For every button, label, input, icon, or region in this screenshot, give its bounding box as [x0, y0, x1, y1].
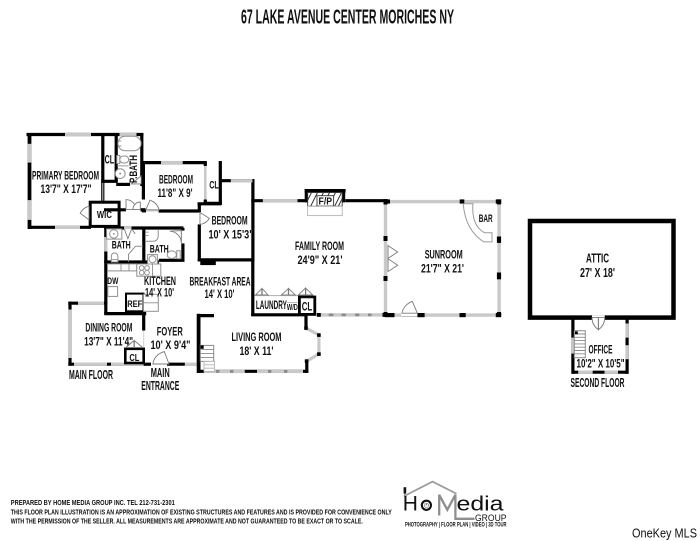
svg-text:OFFICE: OFFICE — [589, 342, 613, 356]
svg-text:24'9" X 21': 24'9" X 21' — [298, 253, 343, 267]
svg-text:10'2" X 10'5": 10'2" X 10'5" — [577, 357, 625, 371]
svg-text:MAIN FLOOR: MAIN FLOOR — [69, 367, 113, 382]
svg-text:CL: CL — [209, 180, 219, 192]
svg-text:FOYER: FOYER — [157, 324, 183, 338]
svg-text:BEDROOM: BEDROOM — [212, 213, 248, 227]
svg-text:ATTIC: ATTIC — [586, 252, 609, 266]
svg-text:P.BATH: P.BATH — [128, 155, 140, 183]
svg-text:F/P: F/P — [319, 196, 333, 208]
svg-text:13'7" X 17'7": 13'7" X 17'7" — [41, 182, 92, 196]
svg-text:DW: DW — [107, 276, 118, 286]
svg-text:THIS FLOOR PLAN ILLUSTRATION I: THIS FLOOR PLAN ILLUSTRATION IS AN APPRO… — [11, 509, 392, 516]
svg-text:21'7" X 21': 21'7" X 21' — [421, 262, 464, 276]
svg-text:18' X 11': 18' X 11' — [240, 344, 274, 358]
svg-text:CL: CL — [129, 353, 139, 364]
svg-text:SUNROOM: SUNROOM — [425, 248, 463, 262]
svg-text:13'7" X 11'4": 13'7" X 11'4" — [84, 334, 133, 348]
svg-text:11'8" X 9': 11'8" X 9' — [158, 186, 193, 200]
svg-text:BATH: BATH — [150, 244, 169, 256]
svg-text:67 LAKE AVENUE CENTER MORICHES: 67 LAKE AVENUE CENTER MORICHES NY — [241, 6, 454, 28]
svg-text:REF: REF — [127, 299, 142, 309]
svg-text:H: H — [403, 493, 418, 516]
svg-text:ENTRANCE: ENTRANCE — [141, 378, 179, 393]
svg-text:CL: CL — [105, 154, 115, 166]
svg-text:OneKey MLS: OneKey MLS — [632, 525, 697, 540]
svg-text:10' X 15'3": 10' X 15'3" — [209, 227, 254, 241]
svg-text:FAMILY ROOM: FAMILY ROOM — [295, 239, 344, 253]
svg-text:BATH: BATH — [112, 240, 131, 252]
svg-text:LIVING ROOM: LIVING ROOM — [232, 330, 282, 344]
svg-text:PHOTOGRAPHY | FLOOR PLAN |: PHOTOGRAPHY | FLOOR PLAN | VIDEO | 3D TO… — [405, 523, 507, 529]
svg-text:W/D: W/D — [287, 302, 298, 312]
svg-text:SECOND FLOOR: SECOND FLOOR — [571, 376, 625, 390]
svg-text:BEDROOM: BEDROOM — [159, 172, 193, 186]
svg-text:27' X 18': 27' X 18' — [580, 266, 615, 280]
svg-text:14' X 10': 14' X 10' — [205, 287, 235, 301]
svg-text:BAR: BAR — [479, 213, 493, 225]
svg-text:10' X 9'4": 10' X 9'4" — [151, 338, 191, 352]
svg-text:WITH THE PERMISSION OF THE SEL: WITH THE PERMISSION OF THE SELLER. ALL M… — [11, 519, 363, 526]
svg-text:PRIMARY BEDROOM: PRIMARY BEDROOM — [32, 168, 99, 182]
svg-text:PREPARED BY HOME MEDIA GROUP: PREPARED BY HOME MEDIA GROUP INC. TEL 21… — [11, 500, 175, 507]
svg-text:CL: CL — [302, 301, 313, 313]
svg-text:LAUNDRY: LAUNDRY — [256, 298, 287, 312]
svg-text:14' X 10': 14' X 10' — [145, 286, 174, 300]
svg-text:DINING ROOM: DINING ROOM — [85, 321, 132, 335]
